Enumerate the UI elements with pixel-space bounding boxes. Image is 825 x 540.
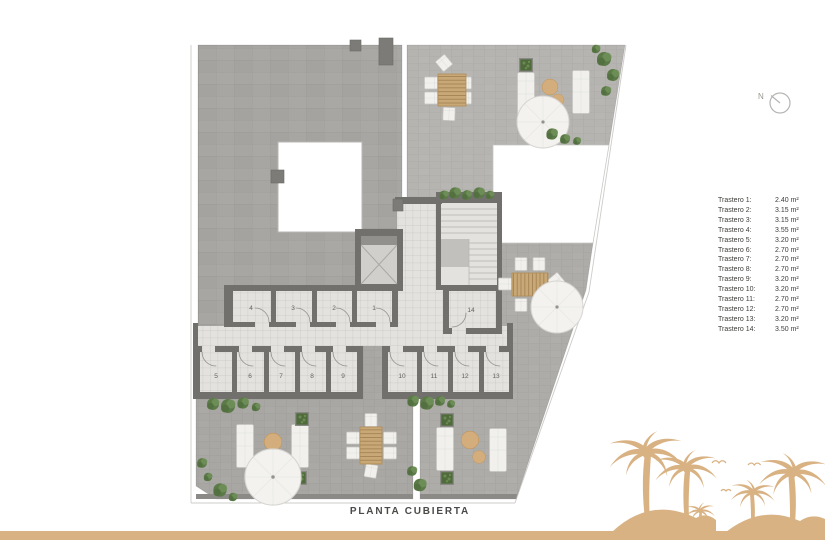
storage-room-6: 6 xyxy=(237,345,264,392)
legend-room-label: Trastero 7: xyxy=(718,255,775,265)
dining-table xyxy=(360,427,382,464)
storage-room-8: 8 xyxy=(300,345,326,392)
legend-row: Trastero 2:3.15 m² xyxy=(718,206,808,216)
chair xyxy=(347,447,360,459)
planter-box xyxy=(295,412,309,426)
sun-lounger xyxy=(573,71,590,114)
room-number: 13 xyxy=(492,373,500,380)
legend-room-label: Trastero 8: xyxy=(718,265,775,275)
room-number: 7 xyxy=(279,373,283,380)
stair-landing xyxy=(441,239,469,267)
legend-row: Trastero 6:2.70 m² xyxy=(718,246,808,256)
chair xyxy=(384,432,397,444)
legend-row: Trastero 10:3.20 m² xyxy=(718,285,808,295)
legend-row: Trastero 12:2.70 m² xyxy=(718,305,808,315)
sun-lounger xyxy=(490,429,507,472)
legend-room-label: Trastero 2: xyxy=(718,206,775,216)
storage-room-9: 9 xyxy=(331,345,357,392)
planter-box xyxy=(519,58,533,72)
room-number: 12 xyxy=(461,373,469,380)
planter-box xyxy=(440,471,454,485)
legend-row: Trastero 8:2.70 m² xyxy=(718,265,808,275)
beanbag xyxy=(473,451,486,464)
room-number: 10 xyxy=(398,373,406,380)
legend: Trastero 1:2.40 m²Trastero 2:3.15 m²Tras… xyxy=(718,196,808,335)
palm-trees-graphic xyxy=(607,429,825,537)
legend-row: Trastero 9:3.20 m² xyxy=(718,275,808,285)
plan-title: PLANTA CUBIERTA xyxy=(250,506,570,517)
chair xyxy=(384,447,397,459)
chair xyxy=(364,464,378,479)
legend-room-label: Trastero 3: xyxy=(718,216,775,226)
sand-mound xyxy=(726,515,825,532)
room-number: 2 xyxy=(332,305,336,312)
compass-north-label: N xyxy=(758,92,764,101)
storage-room-7: 7 xyxy=(269,345,295,392)
chair xyxy=(347,432,360,444)
legend-row: Trastero 5:3.20 m² xyxy=(718,236,808,246)
legend-room-area: 3.20 m² xyxy=(775,285,808,295)
legend-room-area: 3.20 m² xyxy=(775,236,808,246)
legend-room-area: 2.70 m² xyxy=(775,295,808,305)
sun-lounger xyxy=(437,428,454,471)
north-compass: N xyxy=(758,92,790,113)
chair xyxy=(425,92,438,104)
legend-room-area: 3.20 m² xyxy=(775,315,808,325)
legend-room-area: 2.70 m² xyxy=(775,246,808,256)
room-number: 5 xyxy=(214,373,218,380)
beanbag xyxy=(461,431,479,449)
storage-room-14: 14 xyxy=(449,291,496,334)
chair xyxy=(515,299,527,312)
room-number: 11 xyxy=(431,373,438,380)
legend-room-label: Trastero 6: xyxy=(718,246,775,256)
parasol xyxy=(245,449,301,505)
chair xyxy=(425,77,438,89)
legend-row: Trastero 13:3.20 m² xyxy=(718,315,808,325)
legend-row: Trastero 1:2.40 m² xyxy=(718,196,808,206)
chair xyxy=(443,107,455,120)
stair-core xyxy=(436,192,502,290)
room-number: 8 xyxy=(310,373,314,380)
legend-room-area: 3.20 m² xyxy=(775,275,808,285)
legend-room-area: 2.70 m² xyxy=(775,265,808,275)
storage-room-12: 12 xyxy=(453,345,479,392)
beanbag xyxy=(542,79,558,95)
elevator xyxy=(355,229,403,291)
room-number: 3 xyxy=(291,305,295,312)
legend-room-area: 3.50 m² xyxy=(775,325,808,335)
legend-row: Trastero 4:3.55 m² xyxy=(718,226,808,236)
legend-room-label: Trastero 10: xyxy=(718,285,775,295)
storage-room-11: 11 xyxy=(422,345,448,392)
south-parapet xyxy=(196,494,517,499)
chair xyxy=(515,258,527,271)
legend-row: Trastero 7:2.70 m² xyxy=(718,255,808,265)
legend-room-label: Trastero 11: xyxy=(718,295,775,305)
legend-room-area: 2.70 m² xyxy=(775,255,808,265)
legend-room-area: 2.40 m² xyxy=(775,196,808,206)
chair xyxy=(365,414,377,427)
legend-room-label: Trastero 1: xyxy=(718,196,775,206)
parasol xyxy=(531,281,583,333)
legend-room-label: Trastero 13: xyxy=(718,315,775,325)
dining-table xyxy=(438,74,466,106)
legend-row: Trastero 11:2.70 m² xyxy=(718,295,808,305)
legend-room-area: 2.70 m² xyxy=(775,305,808,315)
legend-room-label: Trastero 14: xyxy=(718,325,775,335)
room-number: 6 xyxy=(248,373,252,380)
south-passage xyxy=(363,346,382,399)
accent-footer-strip xyxy=(0,531,825,540)
legend-room-area: 3.15 m² xyxy=(775,206,808,216)
storage-room-5: 5 xyxy=(200,345,232,392)
room-number: 9 xyxy=(341,373,345,380)
legend-room-area: 3.55 m² xyxy=(775,226,808,236)
compass-needle xyxy=(771,96,780,104)
legend-row: Trastero 14:3.50 m² xyxy=(718,325,808,335)
chair xyxy=(499,278,512,290)
roof-opening-patio xyxy=(278,142,362,232)
legend-room-label: Trastero 4: xyxy=(718,226,775,236)
floor-plan-sheet: 1 2 3 4 5 6 7 xyxy=(0,0,825,540)
legend-row: Trastero 3:3.15 m² xyxy=(718,216,808,226)
beanbag xyxy=(264,433,282,451)
planter-box xyxy=(440,413,454,427)
legend-room-label: Trastero 5: xyxy=(718,236,775,246)
floor-plan-drawing: 1 2 3 4 5 6 7 xyxy=(0,0,825,540)
legend-room-label: Trastero 9: xyxy=(718,275,775,285)
room-number: 14 xyxy=(467,307,475,314)
room-number: 4 xyxy=(249,305,253,312)
storage-room-10: 10 xyxy=(388,345,417,392)
legend-room-area: 3.15 m² xyxy=(775,216,808,226)
legend-room-label: Trastero 12: xyxy=(718,305,775,315)
room-number: 1 xyxy=(372,305,376,312)
patio-void-right xyxy=(493,145,609,243)
storage-room-13: 13 xyxy=(484,345,509,392)
chair xyxy=(533,258,545,271)
